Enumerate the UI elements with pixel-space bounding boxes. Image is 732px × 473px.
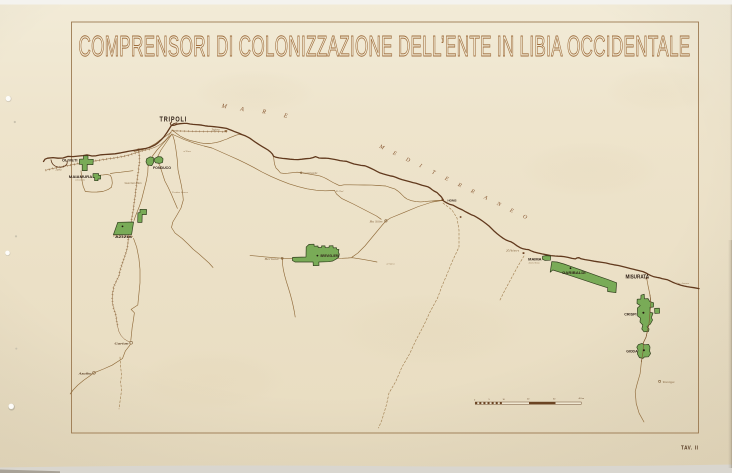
svg-text:COMPRENSORI DI COLONIZZAZIONE: COMPRENSORI DI COLONIZZAZIONE DELL’ENTE … <box>79 31 691 63</box>
svg-text:HOMS: HOMS <box>448 198 457 202</box>
svg-text:Castelverde: Castelverde <box>303 172 318 175</box>
svg-text:Zaviet el Orama: Zaviet el Orama <box>529 261 540 264</box>
svg-text:FONDUCO: FONDUCO <box>153 166 171 170</box>
svg-text:TAV. II: TAV. II <box>681 445 699 451</box>
svg-text:CRISPI: CRISPI <box>624 313 636 317</box>
svg-text:Suani ben Adem: Suani ben Adem <box>125 182 142 185</box>
svg-text:OLIVETI: OLIVETI <box>62 159 78 163</box>
svg-text:Cas. Aurora: Cas. Aurora <box>676 282 690 285</box>
svg-text:GIODA: GIODA <box>626 350 638 354</box>
svg-text:Bu Slim: Bu Slim <box>370 221 383 224</box>
svg-text:TRIPOLI: TRIPOLI <box>160 117 188 124</box>
svg-text:El Chel: El Chel <box>335 190 344 193</box>
svg-text:el Gars: el Gars <box>184 150 191 153</box>
svg-text:40 km: 40 km <box>579 398 585 400</box>
svg-text:AZIZIA: AZIZIA <box>115 234 132 239</box>
svg-text:Zavia: Zavia <box>56 168 63 171</box>
svg-text:Bertuna: Bertuna <box>265 258 280 261</box>
svg-text:Garian: Garian <box>115 342 130 346</box>
svg-text:MISURATA: MISURATA <box>626 274 650 280</box>
svg-text:MAIMA: MAIMA <box>528 258 542 262</box>
svg-text:Taorga: Taorga <box>663 381 676 384</box>
svg-text:concessione: concessione <box>75 179 85 181</box>
svg-text:Zliten: Zliten <box>506 249 520 252</box>
svg-text:Fortino Saorra: Fortino Saorra <box>171 191 189 194</box>
svg-text:Azaiba: Azaiba <box>77 371 92 375</box>
svg-text:el Amra: el Amra <box>387 262 396 265</box>
svg-text:Tagiura: Tagiura <box>212 129 221 132</box>
svg-text:GARIBALDI: GARIBALDI <box>562 271 586 275</box>
svg-text:BREVIGLIERI: BREVIGLIERI <box>321 254 339 258</box>
